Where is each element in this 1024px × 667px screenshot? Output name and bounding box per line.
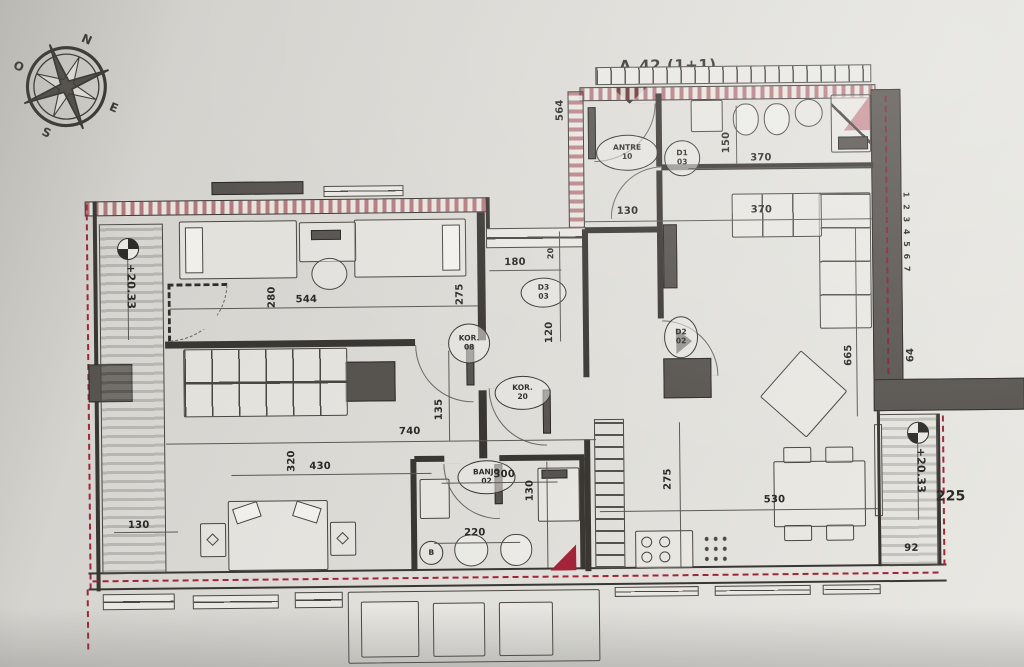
boiler-tag: B bbox=[419, 541, 443, 565]
wardrobe bbox=[183, 348, 348, 418]
dim-220: 220 bbox=[464, 528, 486, 538]
dim-320: 320 bbox=[287, 450, 297, 472]
dim-120: 120 bbox=[545, 322, 555, 344]
dim-275-kitchen: 275 bbox=[663, 468, 673, 490]
stove-burner-icon bbox=[659, 536, 670, 547]
right-structural-wall-horizontal bbox=[873, 378, 1024, 412]
door-tag-d2-number: 02 bbox=[676, 337, 687, 346]
top-left-exterior-wall bbox=[85, 197, 489, 216]
desk-chair bbox=[311, 258, 347, 290]
bedroom2-right-wall bbox=[479, 390, 488, 458]
outside-block-inner-1 bbox=[361, 601, 420, 658]
sofa-short-section bbox=[732, 193, 822, 238]
pillow-right bbox=[442, 225, 460, 271]
corridor-right-wall-lower bbox=[584, 439, 591, 571]
stove-burner-icon bbox=[641, 537, 652, 548]
dining-table bbox=[773, 460, 866, 527]
outside-window-bottom-1 bbox=[103, 594, 175, 611]
stove-burner-icon bbox=[659, 551, 670, 562]
dim-line bbox=[231, 473, 431, 476]
dining-chair-3 bbox=[784, 525, 812, 541]
toilet bbox=[454, 534, 488, 566]
bedroom-divider-wall bbox=[165, 339, 415, 349]
dim-92: 92 bbox=[904, 544, 918, 554]
wall-tick-numbers: 1 2 3 4 5 6 7 bbox=[902, 192, 911, 274]
bath2-bidet bbox=[764, 103, 790, 135]
compass-e-label: E bbox=[107, 99, 120, 115]
door-tag-d3-number: 03 bbox=[538, 293, 549, 302]
corridor-right-wall-upper bbox=[582, 229, 590, 377]
level-marker-left-icon bbox=[117, 238, 139, 260]
level-value-left: +20.33 bbox=[125, 264, 136, 309]
door-tag-d2: D2 02 bbox=[664, 316, 698, 358]
dim-665: 665 bbox=[844, 344, 854, 366]
sofa-long-section bbox=[819, 192, 872, 329]
dim-150: 150 bbox=[722, 132, 732, 154]
dim-130-bath: 130 bbox=[526, 480, 536, 502]
bedroom1-right-wall bbox=[477, 212, 486, 340]
bidet bbox=[500, 534, 532, 566]
outside-block-inner-3 bbox=[499, 602, 554, 657]
level-value-right: +20.33 bbox=[915, 448, 926, 493]
dim-564: 564 bbox=[556, 99, 566, 121]
boiler-tag-letter: B bbox=[428, 549, 434, 558]
bottom-exterior-wall bbox=[88, 563, 946, 590]
dim-line bbox=[489, 269, 561, 271]
entry-door-leaf bbox=[588, 107, 597, 159]
dining-chair-1 bbox=[783, 447, 811, 463]
outside-block-inner-2 bbox=[433, 602, 486, 657]
bath-left-wall bbox=[410, 459, 417, 571]
room-tag-entry-number: 10 bbox=[622, 153, 633, 162]
bottom-insulation-dash bbox=[93, 572, 939, 583]
dim-64: 64 bbox=[906, 348, 916, 362]
dim-130-hall: 130 bbox=[617, 207, 639, 217]
door-tag-d1-number: 03 bbox=[677, 158, 688, 167]
shower-head-shelf bbox=[541, 469, 567, 478]
balcony-door-arc bbox=[167, 283, 228, 342]
dim-180: 180 bbox=[504, 258, 526, 268]
outside-window-bottom-5 bbox=[715, 585, 811, 596]
bath2-shelf bbox=[838, 136, 868, 149]
desk-monitor bbox=[311, 230, 341, 240]
bath2-sink bbox=[691, 100, 723, 132]
column-middle bbox=[345, 361, 395, 402]
room-tag-corridor-upper-number: 08 bbox=[464, 343, 475, 352]
outside-window-bottom-4 bbox=[615, 586, 699, 597]
dim-280: 280 bbox=[267, 286, 277, 308]
bath2-boiler bbox=[795, 99, 823, 127]
compass-rose-icon: N O S E bbox=[11, 32, 122, 141]
floor-plan-photo: N O S E A_42 (1+1) bbox=[0, 0, 1024, 667]
stove-burner-icon bbox=[641, 552, 652, 563]
bath-top-wall-b bbox=[499, 454, 584, 461]
desk bbox=[299, 222, 356, 263]
compass-n-label: N bbox=[80, 32, 95, 48]
dim-275: 275 bbox=[455, 283, 465, 305]
dim-20: 20 bbox=[547, 248, 555, 260]
left-corner-insulation-dash bbox=[87, 589, 90, 649]
pillow-left bbox=[185, 227, 203, 273]
outside-window-bottom-2 bbox=[193, 594, 279, 609]
room-tag-corridor-lower-number: 20 bbox=[517, 393, 528, 402]
upper-window-band bbox=[595, 64, 871, 85]
floor-plan-drawing: N O S E A_42 (1+1) bbox=[0, 0, 1024, 667]
dining-chair-4 bbox=[826, 524, 854, 540]
dim-370-living: 370 bbox=[751, 205, 773, 215]
dim-225: 225 bbox=[936, 489, 966, 503]
dim-130-balcony: 130 bbox=[128, 521, 150, 531]
dim-430: 430 bbox=[309, 462, 331, 472]
level-marker-right-icon bbox=[907, 422, 929, 444]
compass-o-label: O bbox=[11, 58, 26, 75]
outside-window-bottom-6 bbox=[823, 584, 881, 595]
dim-530: 530 bbox=[764, 495, 786, 505]
corridor-window bbox=[486, 227, 586, 248]
dim-300: 300 bbox=[493, 470, 515, 480]
kitchen-vent-dots-icon bbox=[702, 534, 730, 564]
dim-544: 544 bbox=[296, 295, 318, 305]
room-tag-corridor-upper: KOR. 08 bbox=[448, 323, 490, 363]
room-tag-entry: ANTRE 10 bbox=[596, 134, 658, 171]
outside-window-bottom-3 bbox=[295, 592, 343, 609]
tv-unit bbox=[663, 224, 678, 288]
dining-chair-2 bbox=[825, 446, 853, 462]
dim-135: 135 bbox=[435, 399, 445, 421]
bath-top-wall-a bbox=[414, 456, 444, 462]
dim-740: 740 bbox=[399, 427, 421, 437]
outside-slab-top bbox=[211, 181, 303, 195]
door-tag-d1: D1 03 bbox=[664, 140, 700, 176]
step-wall bbox=[486, 197, 490, 232]
entry-left-wall bbox=[567, 91, 584, 231]
kitchen-counter bbox=[594, 419, 626, 569]
dim-line bbox=[679, 422, 682, 568]
hall-bottom-wall bbox=[585, 226, 661, 233]
dim-370-bath: 370 bbox=[750, 153, 772, 163]
rug bbox=[760, 350, 848, 438]
bath-sink bbox=[420, 479, 450, 519]
compass-s-label: S bbox=[40, 124, 53, 140]
outside-window-top bbox=[323, 185, 403, 197]
